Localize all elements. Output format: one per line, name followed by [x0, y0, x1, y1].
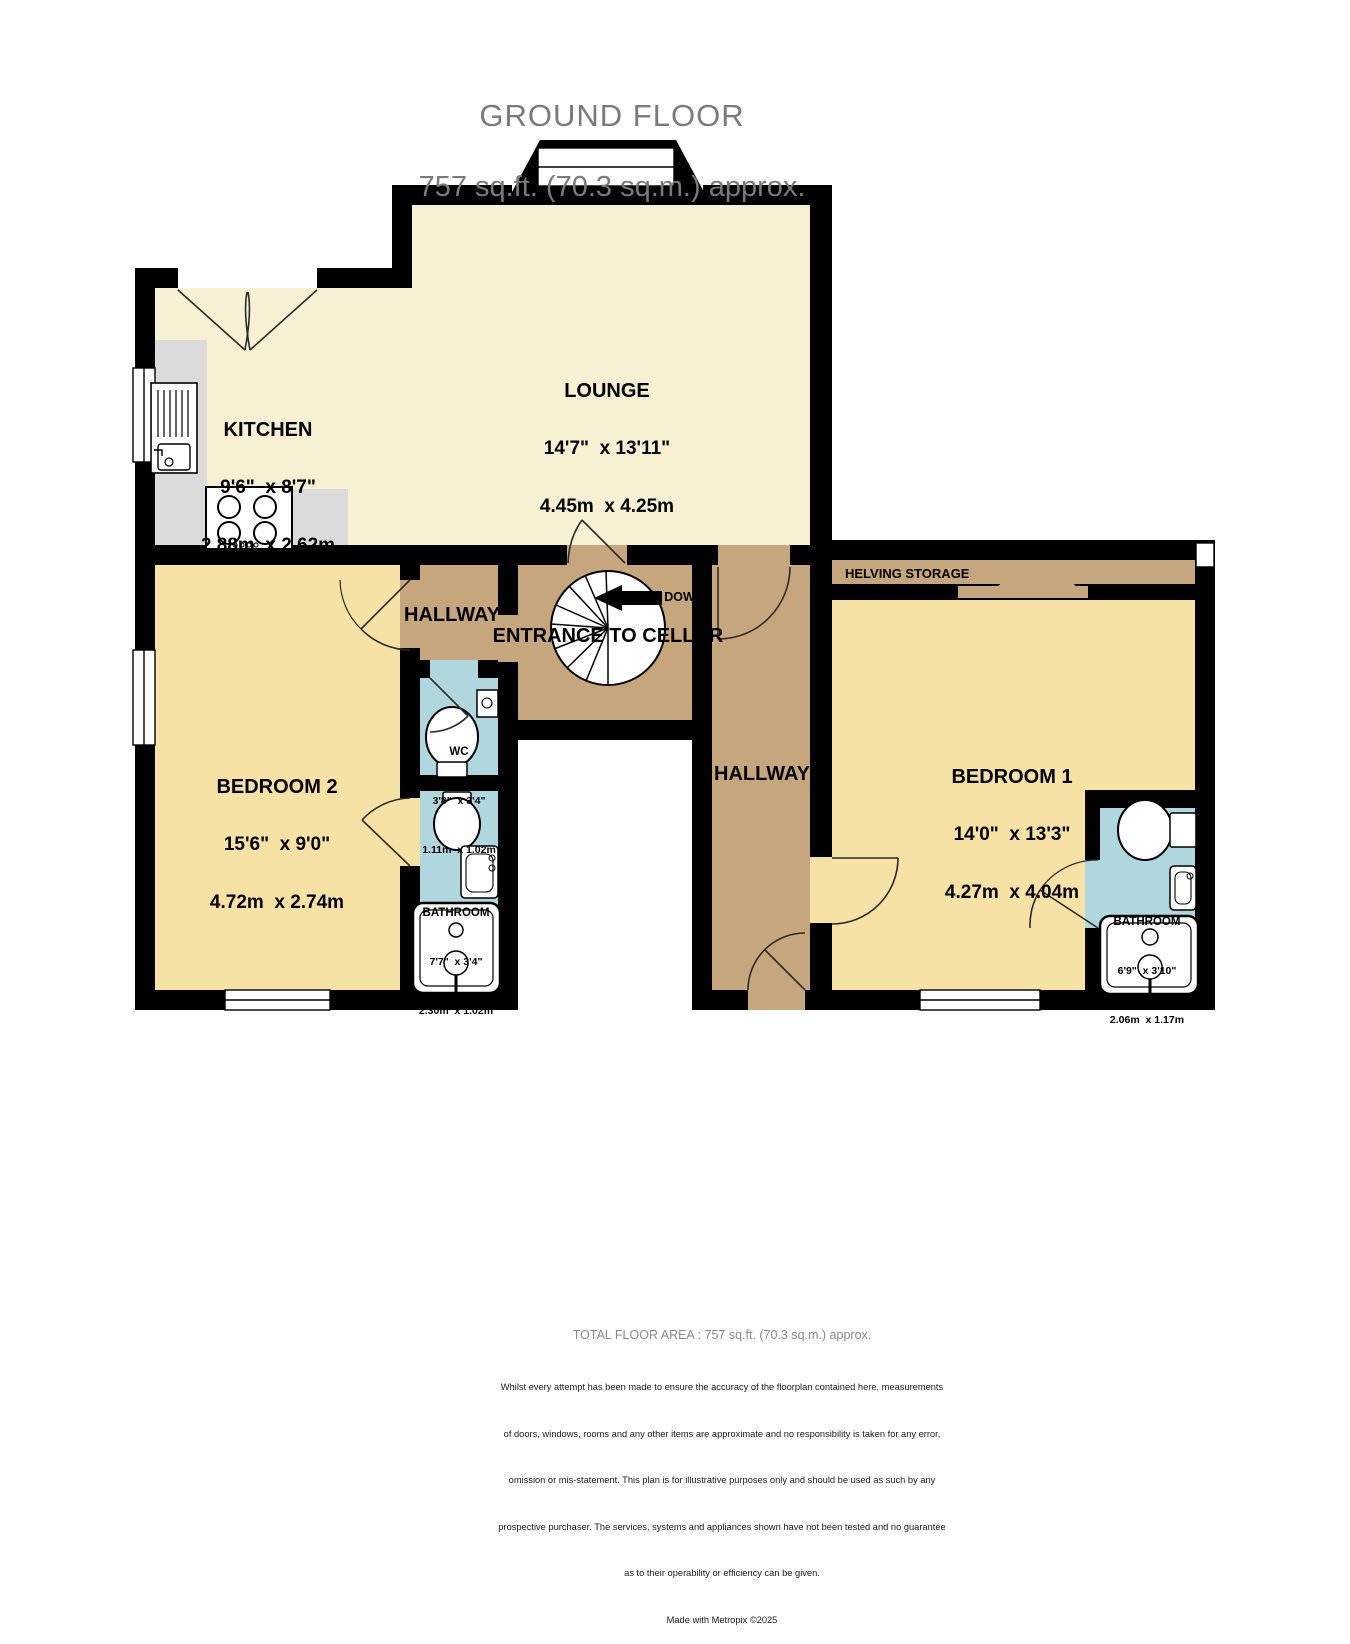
room-dim-metric: 4.27m x 4.04m — [945, 882, 1079, 904]
room-dim-metric: 2.06m x 1.17m — [1110, 1014, 1184, 1027]
shelving-storage-label: HELVING STORAGE — [845, 566, 969, 581]
room-dim-metric: 2.88m x 2.62m — [201, 535, 335, 557]
room-name: BATHROOM — [419, 907, 493, 920]
bedroom2-bottom-window — [225, 990, 330, 1010]
wall — [627, 545, 718, 565]
wall — [400, 565, 420, 580]
room-name: BATHROOM — [1110, 916, 1184, 929]
threshold-lounge-hallway — [718, 545, 790, 565]
disclaimer-line: as to their operability or efficiency ca… — [498, 1568, 945, 1579]
wall — [830, 990, 920, 1010]
threshold-wc — [430, 660, 478, 678]
total-floor-area: TOTAL FLOOR AREA : 757 sq.ft. (70.3 sq.m… — [573, 1327, 872, 1343]
threshold-bedroom1 — [810, 857, 832, 923]
room-dim-imperial: 15'6" x 9'0" — [210, 834, 344, 856]
wall — [135, 545, 567, 565]
bedroom2-label: BEDROOM 2 15'6" x 9'0" 4.72m x 2.74m — [210, 740, 344, 932]
wall — [498, 720, 712, 740]
room-name: BEDROOM 2 — [210, 776, 344, 798]
kitchen-sink-icon — [151, 383, 197, 473]
hallway-right-label: HALLWAY — [714, 763, 810, 785]
entrance-to-cellar-label: ENTRANCE TO CELLAR — [493, 625, 724, 647]
room-dim-imperial: 7'7" x 3'4" — [419, 956, 493, 969]
wall — [498, 565, 518, 615]
bedroom1-corner-window — [1196, 543, 1214, 567]
wall — [692, 990, 748, 1010]
plan-title: GROUND FLOOR — [419, 98, 806, 134]
disclaimer-line: Whilst every attempt has been made to en… — [498, 1382, 945, 1393]
wall — [478, 660, 498, 678]
bedroom1-label: BEDROOM 1 14'0" x 13'3" 4.27m x 4.04m — [945, 730, 1079, 922]
room-name: WC — [422, 746, 496, 759]
room-name: LOUNGE — [540, 380, 674, 402]
wall — [420, 660, 430, 678]
bedroom1-bottom-window — [920, 990, 1040, 1010]
room-dim-imperial: 6'9" x 3'10" — [1110, 965, 1184, 978]
hallway-left-label: HALLWAY — [404, 604, 500, 626]
threshold-bathroom-right — [1085, 860, 1100, 928]
room-dim-imperial: 9'6" x 8'7" — [201, 477, 335, 499]
room-name: KITCHEN — [201, 419, 335, 441]
floorplan-page: { "header": { "title": "GROUND FLOOR", "… — [0, 0, 1350, 1414]
disclaimer-line: omission or mis-statement. This plan is … — [498, 1475, 945, 1486]
room-dim-metric: 4.45m x 4.25m — [540, 496, 674, 518]
room-dim-metric: 4.72m x 2.74m — [210, 892, 344, 914]
wall — [400, 648, 420, 798]
disclaimer-line: of doors, windows, rooms and any other i… — [498, 1429, 945, 1440]
lounge-label: LOUNGE 14'7" x 13'11" 4.45m x 4.25m — [540, 344, 674, 536]
plan-title-block: GROUND FLOOR 757 sq.ft. (70.3 sq.m.) app… — [419, 62, 806, 222]
wall — [317, 268, 400, 288]
threshold-entrance — [748, 990, 805, 1010]
metropix-credit: Made with Metropix ©2025 — [498, 1615, 945, 1626]
room-dim-imperial: 3'8" x 3'4" — [422, 795, 496, 808]
bathroom-right-label: BATHROOM 6'9" x 3'10" 2.06m x 1.17m — [1110, 880, 1184, 1044]
wall — [805, 990, 832, 1010]
bedroom2-side-window — [133, 650, 155, 745]
wall — [135, 990, 225, 1010]
wall — [810, 565, 832, 857]
disclaimer-block: Whilst every attempt has been made to en… — [498, 1346, 945, 1644]
room-name: BEDROOM 1 — [945, 766, 1079, 788]
wall — [825, 540, 1215, 560]
room-dim-imperial: 14'7" x 13'11" — [540, 438, 674, 460]
threshold-bathroom-left — [400, 798, 420, 866]
kitchen-label: KITCHEN 9'6" x 8'7" 2.88m x 2.62m — [201, 383, 335, 575]
wall — [810, 185, 832, 565]
bathroom-left-label: BATHROOM 7'7" x 3'4" 2.30m x 1.02m — [419, 871, 493, 1035]
plan-subtitle: 757 sq.ft. (70.3 sq.m.) approx. — [419, 170, 806, 204]
wc-label: WC 3'8" x 3'4" 1.11m x 1.02m — [422, 710, 496, 874]
room-dim-metric: 2.30m x 1.02m — [419, 1005, 493, 1018]
wall — [1085, 928, 1100, 990]
room-dim-metric: 1.11m x 1.02m — [422, 844, 496, 857]
down-label: DOWN — [664, 590, 704, 604]
room-dim-imperial: 14'0" x 13'3" — [945, 824, 1079, 846]
wall — [498, 662, 518, 740]
wall — [135, 268, 178, 288]
disclaimer-line: prospective purchaser. The services, sys… — [498, 1522, 945, 1533]
